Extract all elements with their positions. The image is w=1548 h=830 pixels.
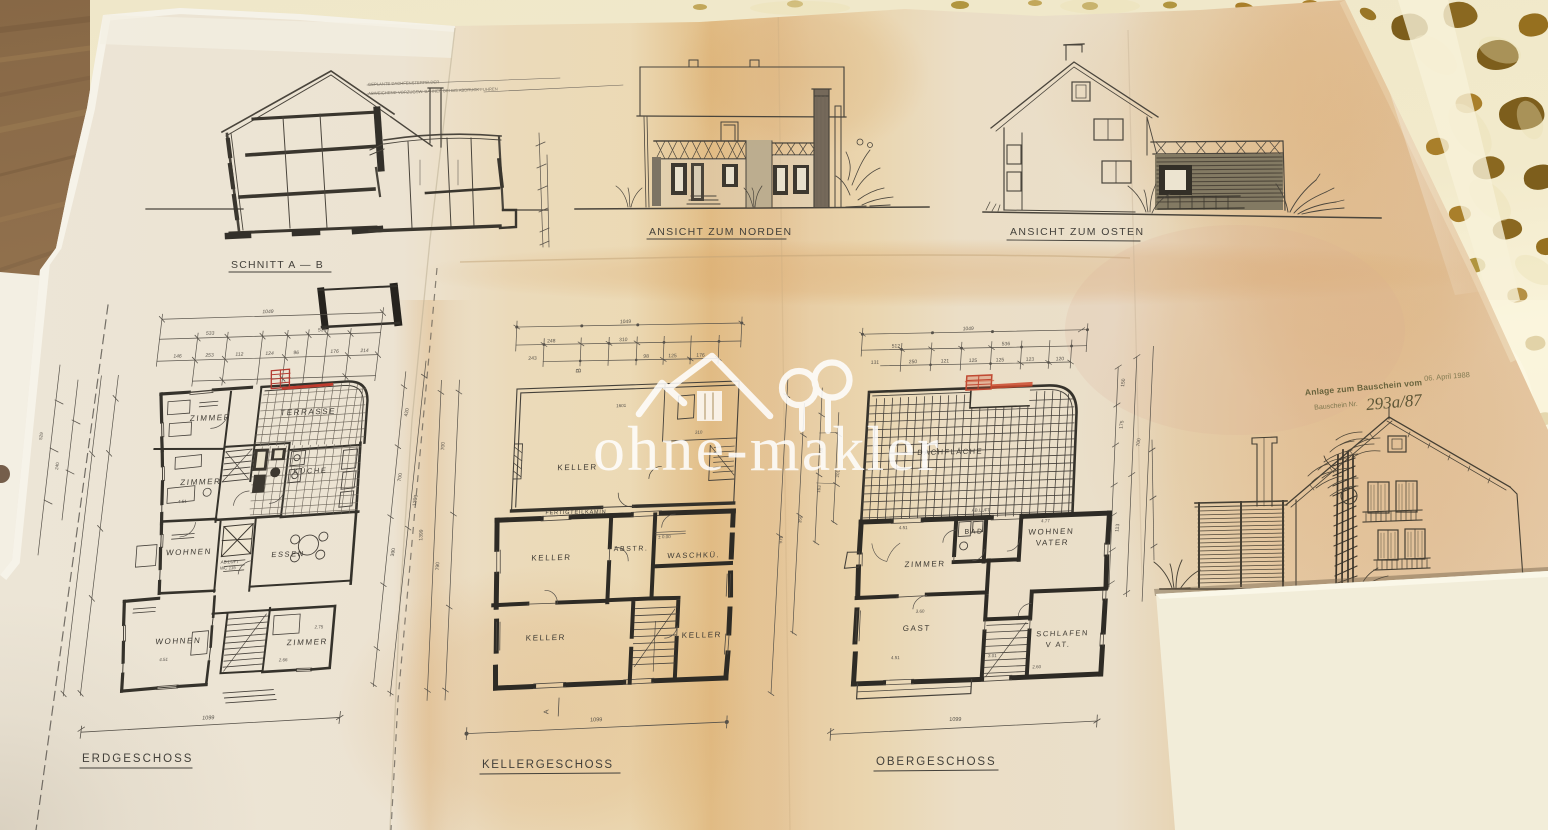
svg-text:1099: 1099 [202,715,215,721]
svg-text:KELLER: KELLER [682,630,723,640]
svg-text:125: 125 [996,357,1005,363]
svg-text:ABSTR.: ABSTR. [614,546,649,554]
svg-text:112: 112 [235,352,244,358]
svg-text:1399: 1399 [418,529,425,540]
svg-text:ZIMMER: ZIMMER [180,477,222,487]
svg-text:125: 125 [969,358,978,364]
svg-text:4.77: 4.77 [1041,518,1051,523]
svg-text:163: 163 [816,485,822,493]
svg-text:98: 98 [643,354,649,360]
svg-text:3.60: 3.60 [916,609,926,614]
svg-text:250: 250 [909,359,918,365]
svg-text:KELLER: KELLER [557,462,598,472]
svg-text:2.66: 2.66 [279,657,289,662]
svg-text:512: 512 [892,343,901,349]
svg-text:1601: 1601 [616,403,627,408]
svg-text:WOHNEN: WOHNEN [155,636,202,646]
svg-text:OBERGESCHOSS: OBERGESCHOSS [876,756,997,768]
svg-text:KELLERGESCHOSS: KELLERGESCHOSS [482,759,614,771]
svg-text:214: 214 [360,348,369,354]
svg-text:WOHNEN: WOHNEN [165,547,212,557]
svg-text:243: 243 [528,356,537,362]
svg-text:WOHNEN: WOHNEN [1028,527,1075,537]
svg-text:ANSICHT ZUM OSTEN: ANSICHT ZUM OSTEN [1010,226,1144,238]
svg-text:131: 131 [871,360,880,366]
svg-text:176: 176 [696,353,705,359]
svg-text:WC 115: WC 115 [220,565,237,570]
svg-text:175: 175 [1119,420,1126,429]
svg-text:WASCHKÜ.: WASCHKÜ. [667,550,720,560]
svg-text:3.01: 3.01 [988,653,998,658]
svg-text:150: 150 [1120,378,1127,387]
svg-text:ohne-makler: ohne-makler [593,413,941,484]
svg-text:A: A [543,709,550,714]
svg-text:KÜCHE: KÜCHE [293,466,328,476]
svg-text:2.60: 2.60 [1032,664,1042,669]
svg-text:ZIMMER: ZIMMER [904,559,946,569]
svg-text:975: 975 [778,536,784,544]
svg-text:4.51: 4.51 [159,657,169,662]
svg-text:123: 123 [1026,357,1035,363]
svg-text:AB.LUFT: AB.LUFT [972,507,991,512]
svg-text:350: 350 [797,515,803,523]
svg-text:253: 253 [205,353,214,359]
svg-text:248: 248 [547,338,556,344]
svg-text:790: 790 [435,562,441,571]
svg-text:GAST: GAST [902,623,931,633]
svg-text:BAD: BAD [964,529,984,536]
svg-text:96: 96 [293,350,299,356]
svg-text:533: 533 [206,331,215,337]
svg-text:2.75: 2.75 [314,624,324,629]
svg-text:125: 125 [668,353,677,359]
svg-text:176: 176 [330,349,339,355]
svg-text:VATER: VATER [1035,538,1069,548]
svg-text:4.51: 4.51 [891,655,901,660]
svg-text:1049: 1049 [262,309,274,315]
svg-text:V AT.: V AT. [1045,640,1070,649]
svg-text:AB.LUFT: AB.LUFT [220,559,239,565]
svg-text:KELLER: KELLER [531,553,572,563]
svg-text:536: 536 [1002,341,1011,347]
svg-text:KELLER: KELLER [526,633,567,643]
svg-text:113: 113 [1114,523,1121,531]
svg-text:536: 536 [318,327,327,333]
svg-text:ZIMMER: ZIMMER [189,413,231,423]
svg-text:1049: 1049 [962,326,974,332]
svg-text:SCHNITT A — B: SCHNITT A — B [231,259,324,271]
svg-text:B: B [576,368,583,373]
svg-text:121: 121 [941,358,950,364]
svg-text:ANSICHT ZUM NORDEN: ANSICHT ZUM NORDEN [649,226,792,238]
svg-text:120: 120 [1056,356,1065,362]
svg-text:ZIMMER: ZIMMER [286,637,328,647]
svg-text:310: 310 [619,337,628,343]
svg-text:1099: 1099 [590,717,603,723]
svg-text:1099: 1099 [949,717,962,723]
svg-text:ERDGESCHOSS: ERDGESCHOSS [82,753,193,765]
svg-text:700: 700 [1135,438,1142,447]
svg-text:4.51: 4.51 [899,525,909,530]
svg-text:124: 124 [265,351,274,357]
svg-text:700: 700 [440,442,446,451]
svg-text:SCHLAFEN: SCHLAFEN [1036,628,1089,638]
svg-text:TERRASSE: TERRASSE [280,407,337,418]
svg-text:ESSEN: ESSEN [271,549,305,559]
svg-text:1049: 1049 [620,319,632,325]
svg-text:146: 146 [173,354,182,360]
svg-text:4.51: 4.51 [178,499,188,504]
